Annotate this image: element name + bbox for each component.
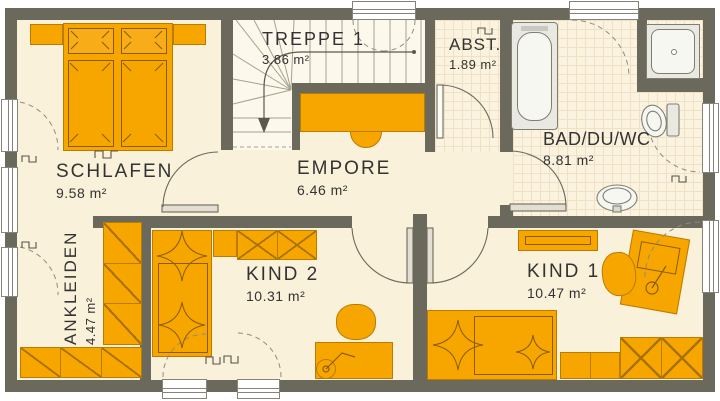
wall-schlafen-treppe <box>221 20 233 150</box>
wall-shower-bottom <box>637 78 703 92</box>
room-name: BAD/DU/WC <box>543 130 651 150</box>
wardrobe-kind2 <box>237 230 317 260</box>
room-label-kind1: KIND 1 10.47 m² <box>527 262 600 301</box>
wall-stair-niche-top <box>292 83 435 93</box>
room-label-abst: ABST. 1.89 m² <box>449 36 501 72</box>
room-area: 9.58 m² <box>56 186 173 201</box>
pillow <box>68 28 114 54</box>
wall-exterior-right <box>703 8 715 392</box>
room-name: SCHLAFEN <box>56 162 173 183</box>
room-label-schlafen: SCHLAFEN 9.58 m² <box>56 162 173 201</box>
window-ankleiden-left <box>1 247 18 297</box>
room-area: 8.81 m² <box>543 153 651 168</box>
room-name: EMPORE <box>297 159 391 180</box>
room-label-treppe1: TREPPE 1 3.86 m² <box>262 30 365 67</box>
wardrobe-ankleiden-row <box>20 347 142 378</box>
shower <box>646 24 700 79</box>
nightstand-right <box>173 24 206 45</box>
room-area: 6.46 m² <box>297 183 391 198</box>
pillow <box>121 28 167 54</box>
wall-kind1-kind2 <box>413 214 427 380</box>
window-kind2-bottom-right <box>237 379 280 399</box>
room-area: 3.86 m² <box>262 53 365 67</box>
bed-kind1 <box>427 310 557 380</box>
room-area: 10.47 m² <box>527 286 600 301</box>
window-treppe-top <box>352 1 416 20</box>
room-area: 10.31 m² <box>246 289 319 304</box>
room-label-bad: BAD/DU/WC 8.81 m² <box>543 130 651 168</box>
mattress <box>121 60 167 147</box>
room-name: TREPPE 1 <box>262 30 365 50</box>
nightstand-left <box>30 24 63 45</box>
window-left-middle <box>1 167 18 233</box>
room-name: ANKLEIDEN <box>62 231 81 345</box>
room-label-empore: EMPORE 6.46 m² <box>297 159 391 198</box>
empore-desk <box>300 93 425 132</box>
floor-plan: SCHLAFEN 9.58 m² ANKLEIDEN 4.47 m² TREPP… <box>0 0 720 401</box>
bathtub-faucet <box>521 26 548 31</box>
room-name: KIND 1 <box>527 262 600 283</box>
wall-mid-right <box>488 216 703 228</box>
wall-treppe-abst <box>425 20 435 152</box>
room-label-ankleiden: ANKLEIDEN 4.47 m² <box>62 231 98 345</box>
bathtub-basin <box>517 32 552 121</box>
room-label-kind2: KIND 2 10.31 m² <box>246 265 319 304</box>
room-area: 4.47 m² <box>84 231 98 345</box>
mattress <box>68 60 114 147</box>
window-bad-right <box>702 103 719 173</box>
window-schlafen-left <box>1 99 18 152</box>
cabinet-kind1 <box>560 352 620 379</box>
room-name: ABST. <box>449 36 501 55</box>
wardrobe-kind1 <box>620 337 703 379</box>
bed-kind2 <box>152 230 212 357</box>
stool-kind2 <box>316 359 336 379</box>
sideboard-kind1 <box>518 230 598 251</box>
double-bed <box>63 23 173 151</box>
wardrobe-ankleiden-column <box>103 222 142 345</box>
mattress <box>158 263 208 353</box>
sideboard-top <box>525 236 591 245</box>
office-chair-kind2 <box>336 304 376 340</box>
room-name: KIND 2 <box>246 265 319 286</box>
shelf-kind2 <box>213 230 237 257</box>
wall-niche-left-stub <box>292 90 300 150</box>
wall-exterior-bottom <box>5 380 715 392</box>
desk-pad <box>636 241 680 275</box>
mattress <box>474 316 553 375</box>
window-kind1-right <box>702 220 719 293</box>
bathtub <box>511 22 558 130</box>
shower-drain <box>671 49 677 55</box>
window-bad-top <box>569 1 639 20</box>
window-kind2-bottom-left <box>162 379 207 399</box>
room-area: 1.89 m² <box>449 58 501 72</box>
